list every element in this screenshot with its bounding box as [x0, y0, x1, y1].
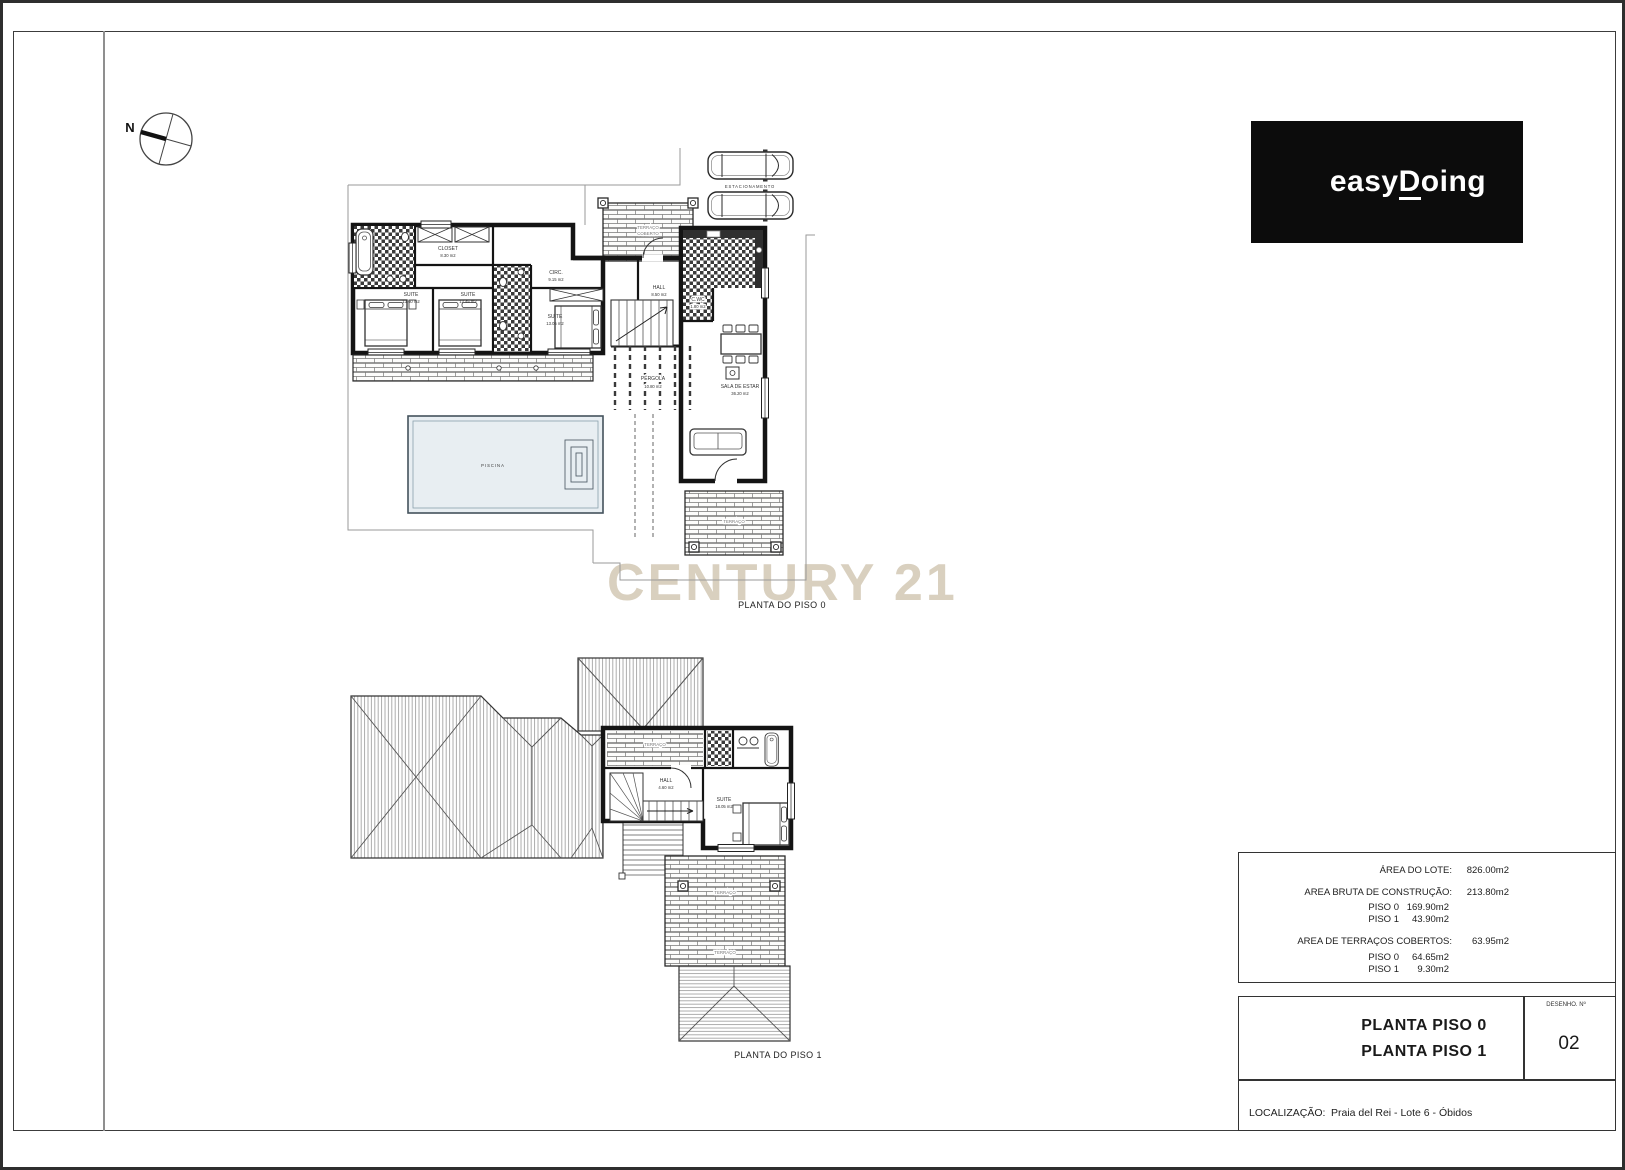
- table-row: AREA DE TERRAÇOS COBERTOS: 63.95m2: [1239, 936, 1615, 948]
- svg-text:1.80 m2: 1.80 m2: [690, 304, 706, 309]
- bed-icon: [743, 803, 789, 845]
- room-label: SALA DE ESTAR: [721, 384, 760, 390]
- car-icon: [708, 150, 793, 182]
- room-label: C.WC: [691, 297, 705, 303]
- bathtub-icon: [356, 229, 373, 275]
- logo-part-d: D: [1399, 167, 1421, 200]
- drawing-sheet: N easyDoing CENTURY 21: [0, 0, 1625, 1170]
- table-row: PISO 1 9.30m2: [1239, 964, 1615, 976]
- svg-text:13.60 m2: 13.60 m2: [402, 299, 420, 304]
- compass-n-label: N: [125, 120, 134, 135]
- kitchen-floor: [683, 230, 763, 288]
- svg-text:TERRAÇO: TERRAÇO: [714, 950, 736, 955]
- stairs: [611, 300, 673, 346]
- drawing-number-label: DESENHO. Nº: [1523, 1002, 1609, 1008]
- bed-icon: [365, 300, 407, 346]
- svg-text:TERRAÇO: TERRAÇO: [637, 225, 659, 230]
- roof-main: [351, 696, 603, 858]
- logo-part-oing: oing: [1421, 165, 1486, 198]
- svg-text:COBERTO: COBERTO: [637, 231, 659, 236]
- room-label: HALL: [653, 285, 666, 291]
- table-row: AREA BRUTA DE CONSTRUÇÃO: 213.80m2: [1239, 887, 1615, 899]
- sink-icon: [739, 737, 747, 745]
- toilet-icon: [402, 233, 409, 242]
- table-row: PISO 0 64.65m2: [1239, 952, 1615, 964]
- room-label: CLOSET: [438, 246, 458, 252]
- svg-text:36.20 m2: 36.20 m2: [731, 391, 749, 396]
- terrace-lower: TERRAÇO: [685, 491, 783, 555]
- parking-label: ESTACIONAMENTO: [725, 184, 775, 189]
- svg-text:12.45 m2: 12.45 m2: [459, 299, 477, 304]
- plan0-caption: PLANTA DO PISO 0: [667, 600, 897, 610]
- car-icon: [708, 190, 793, 222]
- easydoing-logo: easyDoing: [1251, 121, 1523, 243]
- floor-plan-piso-0: ESTACIONAMENTO TERRAÇO COBERTO: [348, 148, 815, 580]
- north-compass-icon: N: [108, 98, 208, 183]
- plan1-caption: PLANTA DO PISO 1: [663, 1050, 893, 1060]
- svg-text:13.05 m2: 13.05 m2: [546, 321, 564, 326]
- svg-text:4.60 m2: 4.60 m2: [658, 785, 674, 790]
- kitchen-counter: [683, 230, 763, 238]
- location-label: LOCALIZAÇÃO:: [1249, 1107, 1325, 1119]
- floor-marker: [726, 367, 739, 379]
- sheet-title: PLANTA PISO 0 PLANTA PISO 1: [1324, 1013, 1524, 1065]
- walkway: [353, 355, 593, 381]
- sink-icon: [750, 737, 758, 745]
- location-block: LOCALIZAÇÃO: Praia del Rei - Lote 6 - Ób…: [1238, 1080, 1616, 1131]
- svg-text:TERRAÇO: TERRAÇO: [644, 742, 666, 747]
- room-label: SUITE: [548, 314, 563, 320]
- wc-floor: [494, 266, 530, 352]
- terrace-piso1-top: [607, 731, 703, 766]
- bed-icon: [555, 306, 601, 348]
- pool: PISCINA: [408, 416, 603, 513]
- sofa-icon: [690, 429, 746, 455]
- svg-text:10.80 m2: 10.80 m2: [644, 384, 662, 389]
- roof-gable-top: [578, 658, 703, 731]
- bathtub-icon: [765, 733, 778, 766]
- pool-label: PISCINA: [481, 463, 505, 468]
- svg-text:9.15 m2: 9.15 m2: [548, 277, 564, 282]
- piso1-house: TERRAÇO HALL 4.60 m2 SUITE: [603, 728, 795, 852]
- svg-text:TERRAÇO: TERRAÇO: [714, 890, 736, 895]
- living-wing: C.WC 1.80 m2 SALA DE ESTAR 36.20 m2: [681, 228, 769, 484]
- room-label: HALL: [660, 778, 673, 784]
- title-block: PLANTA PISO 0 PLANTA PISO 1 DESENHO. Nº …: [1238, 996, 1616, 1080]
- roof-bottom: [679, 966, 790, 1041]
- logo-part-easy: easy: [1330, 165, 1399, 198]
- floor-plan-piso-1: TERRAÇO HALL 4.60 m2 SUITE: [351, 658, 795, 1041]
- table-row: PISO 0 169.90m2: [1239, 902, 1615, 914]
- svg-text:18.05 m2: 18.05 m2: [715, 804, 733, 809]
- svg-text:8.50 m2: 8.50 m2: [651, 292, 667, 297]
- area-summary-table: ÁREA DO LOTE: 826.00m2 AREA BRUTA DE CON…: [1238, 852, 1616, 983]
- room-label: SUITE: [461, 292, 476, 298]
- table-row: PISO 1 43.90m2: [1239, 914, 1615, 926]
- room-label: SUITE: [404, 292, 419, 298]
- easydoing-wordmark: easyDoing: [1330, 165, 1486, 200]
- drawing-number-cell: DESENHO. Nº 02: [1523, 997, 1615, 1079]
- svg-text:8.30 m2: 8.30 m2: [440, 253, 456, 258]
- dining-table: [721, 325, 761, 363]
- kitchen-sink-icon: [756, 247, 761, 252]
- sheet-left-rule: [103, 31, 105, 1131]
- terrace-piso1-lower: TERRAÇO TERRAÇO: [665, 856, 785, 966]
- stove-icon: [707, 231, 720, 237]
- bed-icon: [439, 300, 481, 346]
- room-label: CIRC.: [549, 270, 563, 276]
- svg-text:TERRAÇO: TERRAÇO: [723, 519, 745, 524]
- drawing-number: 02: [1523, 1033, 1615, 1055]
- location-value: Praia del Rei - Lote 6 - Óbidos: [1331, 1107, 1472, 1119]
- room-label: SUITE: [717, 797, 732, 803]
- room-label: PÉRGOLA: [641, 375, 666, 382]
- table-row: ÁREA DO LOTE: 826.00m2: [1239, 865, 1615, 877]
- floor-plans-svg: ESTACIONAMENTO TERRAÇO COBERTO: [333, 133, 833, 1063]
- wc-floor: [707, 731, 731, 766]
